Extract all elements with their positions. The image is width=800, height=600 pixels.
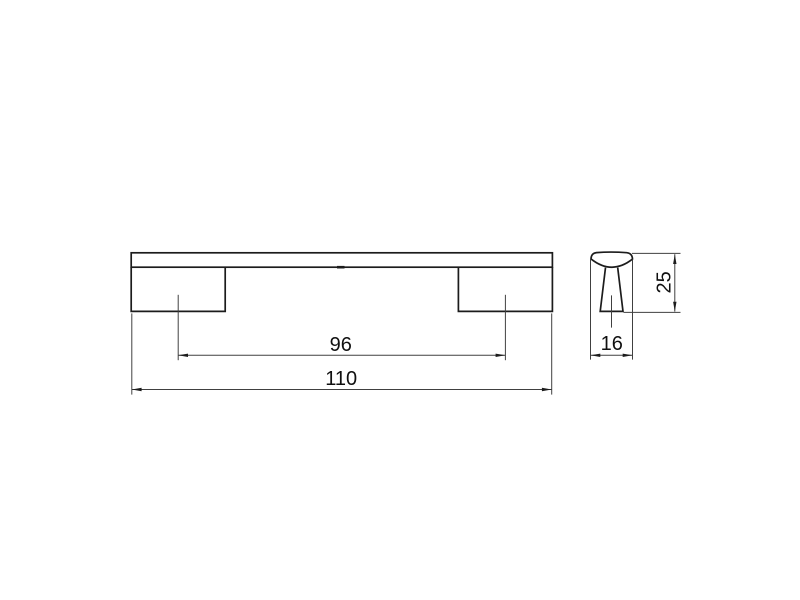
svg-text:110: 110 [325,368,357,390]
svg-text:25: 25 [653,271,675,293]
svg-text:16: 16 [601,333,623,355]
svg-text:96: 96 [330,334,352,356]
